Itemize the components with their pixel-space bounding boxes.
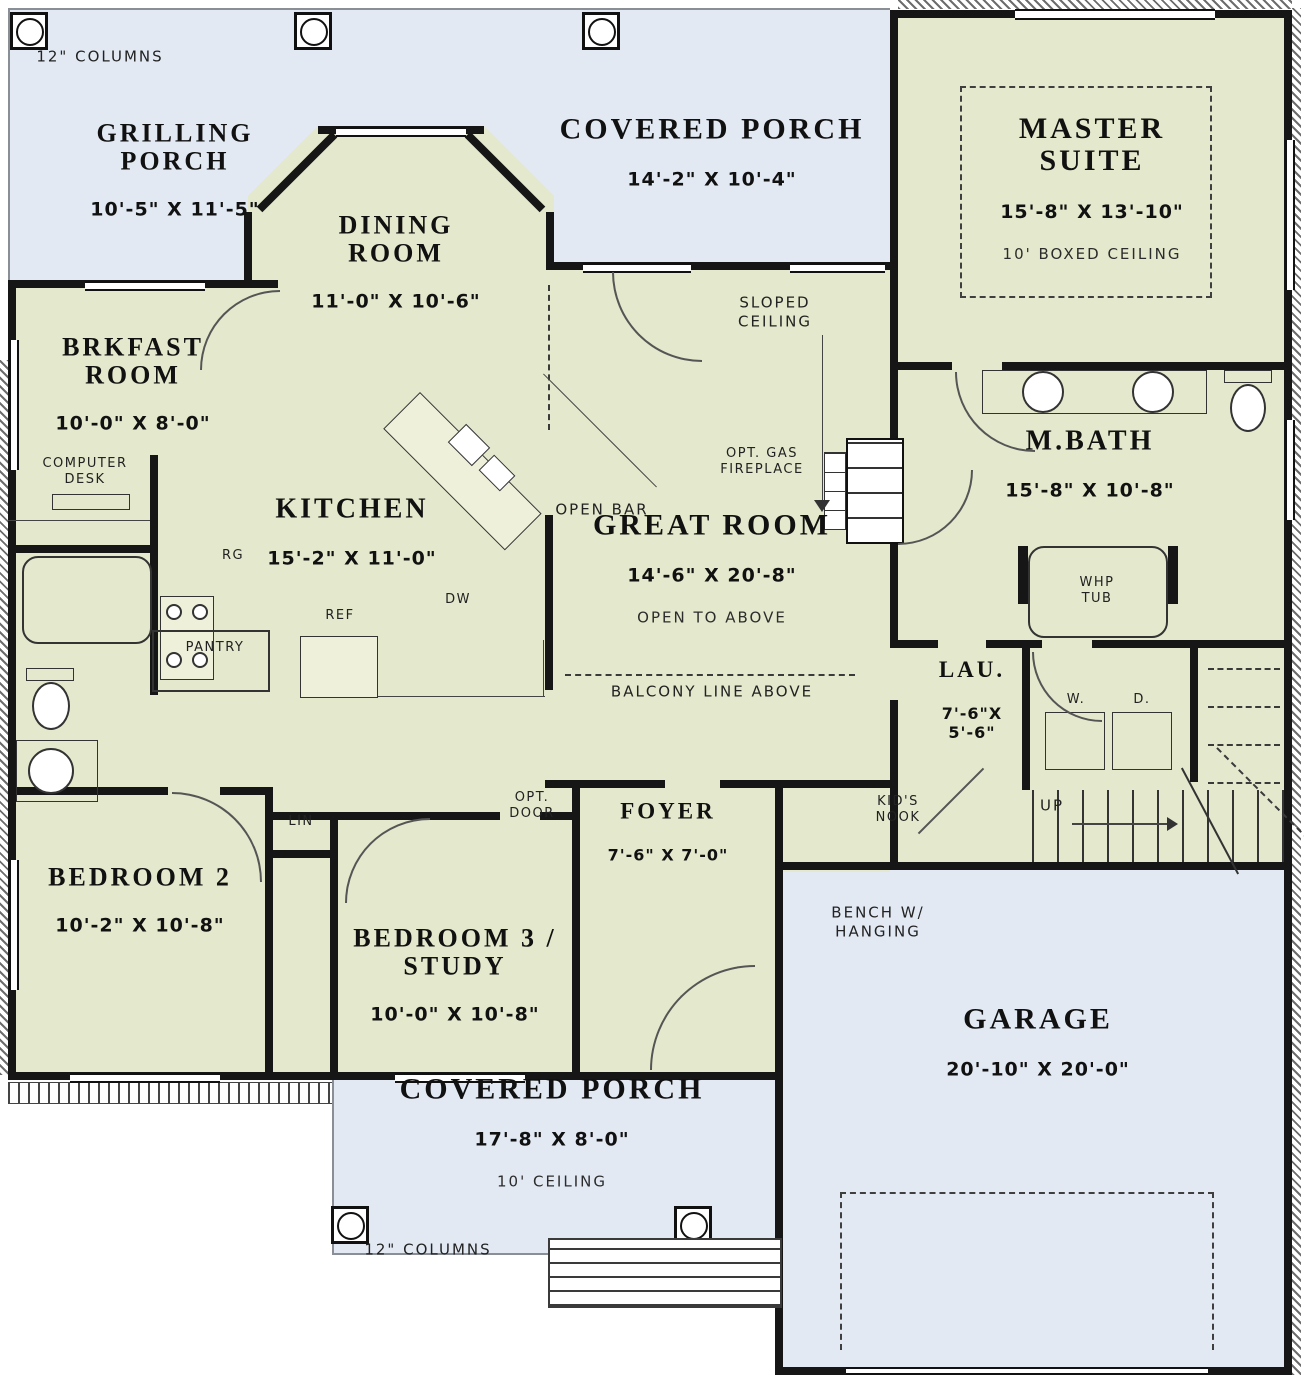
covered-porch-top-label: COVERED PORCH 14'-2" X 10'-4" [560,94,865,209]
refrigerator [300,636,378,698]
wall [265,787,273,1080]
toilet-tank [26,668,74,681]
ceiling-break-dashed [548,285,550,430]
pantry-note: PANTRY [186,640,245,656]
bench-note: BENCH W/ HANGING [831,903,924,941]
sink [28,748,74,794]
kids-nook-note: KID'S NOOK [876,794,921,827]
up-arrow-line [1072,823,1167,825]
entry-steps [548,1238,782,1308]
wall [890,640,938,648]
room-name: BEDROOM 3 / STUDY [353,924,556,980]
wall [1018,546,1028,604]
wall [1002,362,1292,370]
balcony-dashed-line [565,674,855,676]
room-dims: 15'-2" X 11'-0" [267,548,436,570]
window [790,263,885,273]
opt-door-note: OPT. DOOR [509,790,555,823]
porch-column [10,12,48,50]
porch-column [331,1206,369,1244]
computer-desk [52,494,130,510]
opt-gas-fireplace-note: OPT. GAS FIREPLACE [720,446,803,479]
garage-door-dashed [840,1192,1214,1350]
wall [890,700,898,870]
room-dims: 15'-8" X 10'-8" [1005,480,1174,502]
room-dims: 10'-0" X 8'-0" [55,413,210,435]
wall [890,362,952,370]
wall [220,787,270,795]
wall [270,850,338,858]
brick-hatch-left [0,360,8,1075]
room-note: 10' CEILING [400,1173,705,1191]
porch-column [582,12,620,50]
master-suite-label: MASTER SUITE 15'-8" X 13'-10" 10' BOXED … [1000,94,1184,282]
column-circle [300,18,328,46]
window [1285,140,1295,290]
computer-desk-note: COMPUTER DESK [42,456,127,489]
room-dims: 14'-2" X 10'-4" [560,169,865,191]
washer-note: W. [1067,692,1086,708]
laundry-label: LAU. 7'-6"X 5'-6" [939,639,1005,761]
wall [545,515,553,690]
wall [720,780,890,788]
room-name: GRILLING PORCH [90,119,259,175]
room-note: OPEN TO ABOVE [593,609,831,627]
room-dims: 17'-8" X 8'-0" [400,1129,705,1151]
room-dims: 10'-0" X 10'-8" [353,1004,556,1026]
room-dims: 15'-8" X 13'-10" [1000,201,1184,223]
window [85,281,205,291]
open-above-dashes [1208,782,1280,784]
room-dims: 7'-6" X 7'-0" [608,845,729,864]
wall [1168,546,1178,604]
room-name: MASTER SUITE [1000,113,1184,178]
porch-column [294,12,332,50]
floor-plan: GRILLING PORCH 10'-5" X 11'-5" COVERED P… [0,0,1304,1383]
brick-hatch-top [898,0,1292,9]
whp-tub-note: WHP TUB [1080,575,1115,608]
room-name: KITCHEN [267,494,436,524]
column-circle [680,1212,708,1240]
foyer-label: FOYER 7'-6" X 7'-0" [608,781,729,884]
brkfast-room-label: BRKFAST ROOM 10'-0" X 8'-0" [55,314,210,453]
room-name: M.BATH [1005,426,1174,456]
garage-label: GARAGE 20'-10" X 20'-0" [946,984,1130,1099]
dishwasher-note: DW [445,592,471,608]
dining-room-label: DINING ROOM 11'-0" X 10'-6" [311,192,480,331]
grilling-porch-label: GRILLING PORCH 10'-5" X 11'-5" [90,100,259,239]
counter-line [378,696,545,697]
garage-door-opening [846,1367,1208,1375]
window [9,860,19,990]
columns-note-bottom: 12" COLUMNS [364,1241,491,1260]
wall [1022,648,1030,790]
sloped-ceiling-note: SLOPED CEILING [738,293,812,331]
counter-line [543,640,544,696]
fireplace [846,438,904,544]
linen-note: LIN [288,814,313,830]
m-bath-label: M.BATH 15'-8" X 10'-8" [1005,407,1174,520]
room-name: FOYER [608,800,729,825]
column-circle [588,18,616,46]
toilet-bowl [32,682,70,730]
porch-edge [8,8,890,10]
burner [192,604,208,620]
porch-paving-band [8,1082,332,1104]
wall [1092,640,1292,648]
window [70,1073,220,1083]
kitchen-label: KITCHEN 15'-2" X 11'-0" [267,475,436,588]
refrigerator-note: REF [325,608,354,624]
bedroom-2-label: BEDROOM 2 10'-2" X 10'-8" [48,844,232,955]
room-name: COVERED PORCH [400,1073,705,1105]
room-dims: 11'-0" X 10'-6" [311,291,480,313]
dryer [1112,712,1172,770]
open-above-dashes [1208,706,1280,708]
column-circle [337,1212,365,1240]
room-note: 10' BOXED CEILING [1000,245,1184,263]
room-dims: 10'-2" X 10'-8" [48,915,232,937]
room-name: BEDROOM 2 [48,863,232,891]
window [9,340,19,470]
columns-note-top: 12" COLUMNS [36,48,163,67]
open-above-dashes [1208,744,1280,746]
wall [8,545,156,553]
window [336,127,466,137]
room-name: GARAGE [946,1003,1130,1035]
wall [572,787,580,1080]
wall [775,788,783,870]
open-above-dashes [1208,668,1280,670]
room-dims: 7'-6"X 5'-6" [939,704,1005,742]
bedroom-3-label: BEDROOM 3 / STUDY 10'-0" X 10'-8" [353,905,556,1044]
window [1015,9,1215,20]
toilet-tank [1224,370,1272,383]
desk-counter-line [8,520,150,521]
room-dims: 20'-10" X 20'-0" [946,1059,1130,1081]
room-name: COVERED PORCH [560,113,865,145]
stairs [1032,790,1284,862]
range-note: RG [222,548,244,564]
column-circle [16,18,44,46]
room-name: DINING ROOM [311,211,480,267]
up-note: UP [1040,797,1064,816]
covered-porch-bottom-label: COVERED PORCH 17'-8" X 8'-0" 10' CEILING [400,1054,705,1209]
toilet-bowl [1230,384,1266,432]
room-dims: 14'-6" X 20'-8" [593,565,831,587]
up-arrowhead [1167,817,1178,831]
wall [775,862,1292,870]
dryer-note: D. [1133,692,1150,708]
room-name: LAU. [939,658,1005,683]
window [1285,420,1295,520]
wall [1190,648,1198,782]
burner [166,604,182,620]
open-bar-note: OPEN BAR [555,501,648,520]
room-name: BRKFAST ROOM [55,333,210,389]
room-dims: 10'-5" X 11'-5" [90,199,259,221]
bathtub [22,556,152,644]
wall [890,10,898,640]
sloped-ceiling-arrow-line [822,335,823,500]
balcony-line-note: BALCONY LINE ABOVE [611,683,813,702]
